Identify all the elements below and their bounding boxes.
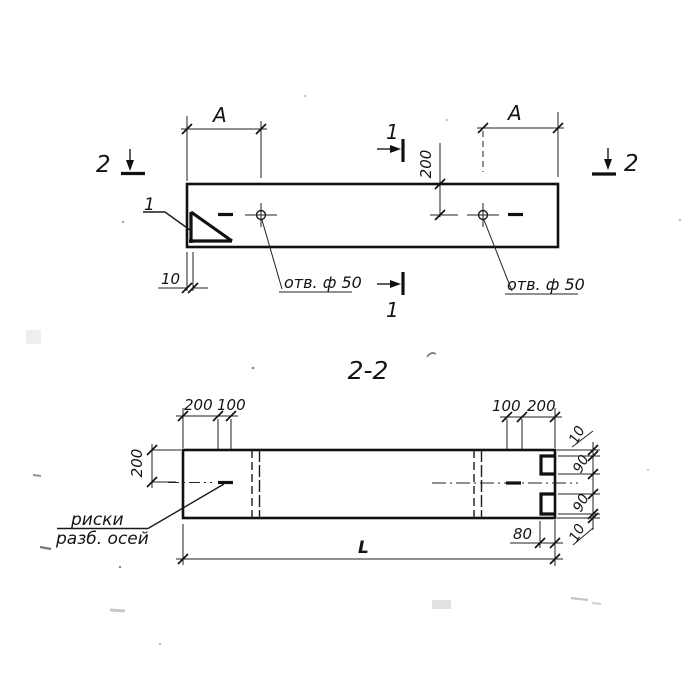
notch-lower	[541, 494, 554, 514]
dim-text: 90	[570, 491, 593, 514]
callout-text-line1: риски	[70, 510, 124, 530]
arrow-right-icon	[390, 280, 401, 288]
scan-speck	[304, 95, 306, 97]
hole-right	[467, 203, 523, 227]
section-view: 2-2	[55, 356, 600, 566]
dim-a-left: A	[181, 103, 267, 181]
scan-smudge	[571, 598, 588, 600]
scan-speck	[252, 367, 255, 370]
leader-line	[262, 220, 282, 289]
scan-speck	[122, 221, 124, 223]
scan-smudge	[110, 610, 125, 611]
dim-text: 100	[217, 396, 246, 414]
leader-line	[148, 484, 224, 529]
scan-speck	[446, 119, 448, 121]
scan-speck	[647, 469, 649, 471]
detail-callout-1: 1	[143, 195, 190, 230]
scan-smudge	[26, 330, 41, 344]
dim-text: 100	[492, 397, 521, 415]
dim-text: 200	[527, 397, 556, 415]
dim-text: 200	[128, 449, 146, 478]
section-marker-1-top: 1	[377, 120, 403, 162]
dim-10-plan: 10	[158, 252, 208, 293]
hidden-hole-right	[474, 450, 482, 518]
dim-length: L	[176, 524, 563, 565]
dim-text: 80	[513, 525, 532, 543]
dim-200-section: 200	[128, 444, 181, 488]
scanned-drawing-page: 1 A	[0, 0, 700, 700]
axis-marks-callout: риски разб. осей	[55, 484, 224, 549]
dim-text: L	[358, 538, 369, 558]
arrow-down-icon	[604, 159, 612, 170]
arrow-down-icon	[126, 160, 134, 171]
notch-upper	[541, 456, 554, 474]
callout-text-line2: разб. осей	[55, 529, 149, 549]
scan-smudge	[432, 600, 451, 609]
detail-hypotenuse	[191, 212, 232, 241]
scan-speck	[33, 475, 41, 476]
marker-label: 2	[624, 151, 639, 177]
dim-text: 200	[417, 150, 435, 179]
section-marker-2-right: 2	[592, 148, 639, 177]
dim-a-right: A	[477, 101, 564, 177]
dim-200-plan: 200	[417, 143, 458, 220]
hole-callout-right: отв. ф 50	[484, 220, 585, 294]
section-outline	[183, 450, 555, 518]
axis-line	[168, 483, 578, 484]
dim-chain-right: 100 200	[492, 397, 562, 449]
section-marker-1-bottom: 1	[377, 272, 403, 322]
plan-outline	[187, 184, 558, 247]
dim-text: A	[506, 101, 522, 125]
dim-text: 200	[184, 396, 213, 414]
section-marker-2-left: 2	[96, 149, 145, 178]
end-notches	[541, 456, 554, 514]
hole-label: отв. ф 50	[507, 275, 585, 294]
scan-speck	[119, 566, 121, 568]
arrow-right-icon	[390, 145, 401, 153]
scan-smudge	[592, 603, 601, 604]
marker-label: 1	[386, 298, 399, 322]
hidden-hole-left	[252, 450, 260, 518]
corner-detail	[189, 212, 232, 243]
scan-speck	[427, 353, 436, 357]
hole-callout-left: отв. ф 50	[262, 220, 362, 292]
marker-label: 2	[96, 152, 111, 178]
hole-label: отв. ф 50	[284, 273, 362, 292]
marker-label: 1	[386, 120, 399, 144]
scan-speck	[159, 643, 161, 645]
plan-view: 1 A	[96, 101, 639, 322]
drawing-canvas: 1 A	[0, 0, 700, 700]
dim-chain-left: 200 100	[176, 396, 246, 449]
scan-speck	[40, 547, 51, 549]
dim-text: 10	[161, 270, 180, 288]
dim-chain-end: 10 90 90 10	[557, 423, 600, 545]
section-title: 2-2	[348, 356, 389, 385]
hole-left	[218, 203, 277, 227]
dim-text: A	[211, 103, 227, 127]
scan-speck	[679, 219, 682, 222]
